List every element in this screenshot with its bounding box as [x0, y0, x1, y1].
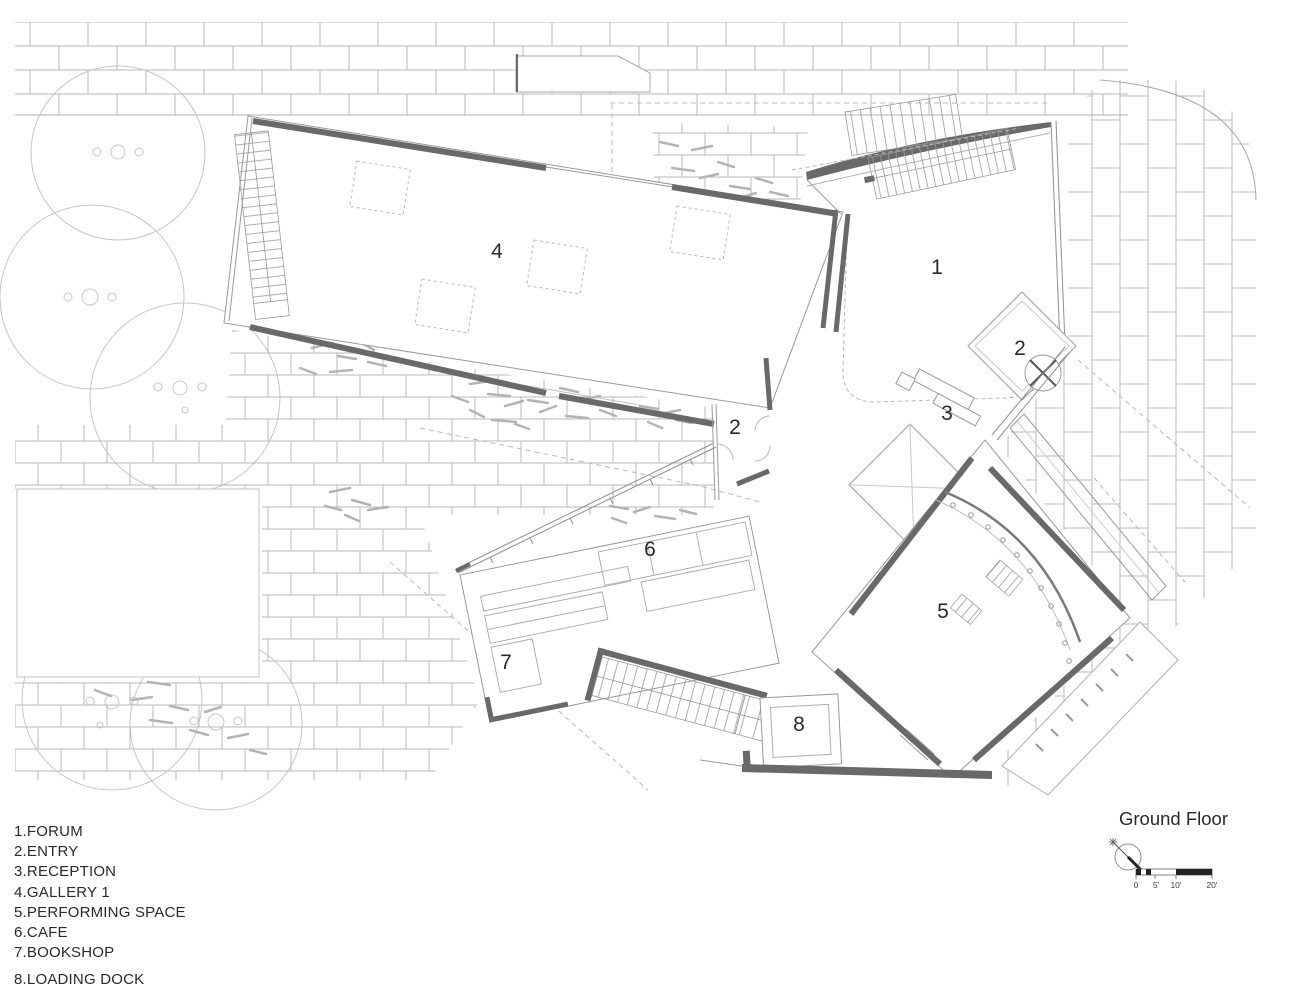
- legend-item: 7.BOOKSHOP: [14, 944, 114, 961]
- room-label-gallery: 4: [491, 240, 503, 263]
- room-label-reception: 3: [941, 402, 953, 425]
- floor-plan-drawing: 4 1 2 3 2 6 5 7 8 1.FORUM 2.ENTRY 3.RECE…: [0, 0, 1304, 1000]
- north-arrow-icon: [1109, 838, 1142, 871]
- legend-item: 4.GALLERY 1: [14, 884, 110, 901]
- drawing-title: Ground Floor: [1119, 808, 1228, 829]
- room-label-entry-east: 2: [1014, 337, 1026, 360]
- scale-tick: 20': [1206, 880, 1217, 890]
- top-brick-paving: [15, 22, 1128, 115]
- room-label-performing: 5: [937, 600, 949, 623]
- scale-tick: 10': [1170, 880, 1181, 890]
- lawn-panel: [17, 489, 259, 677]
- scale-tick: 0: [1134, 880, 1139, 890]
- room-label-entry-mid: 2: [729, 416, 741, 439]
- legend: 1.FORUM 2.ENTRY 3.RECEPTION 4.GALLERY 1 …: [14, 823, 186, 988]
- legend-item: 6.CAFE: [14, 924, 68, 941]
- scale-tick: 5': [1153, 880, 1160, 890]
- legend-item: 1.FORUM: [14, 823, 83, 840]
- legend-item: 8.LOADING DOCK: [14, 971, 144, 988]
- room-label-forum: 1: [931, 256, 943, 279]
- door-swing-arcs: [717, 416, 770, 461]
- legend-item: 3.RECEPTION: [14, 863, 116, 880]
- scale-bar: 0 5' 10' 20': [1134, 869, 1218, 890]
- legend-item: 2.ENTRY: [14, 843, 78, 860]
- legend-item: 5.PERFORMING SPACE: [14, 904, 186, 921]
- room-label-loadingdock: 8: [793, 713, 805, 736]
- floor-plan-page: 4 1 2 3 2 6 5 7 8 1.FORUM 2.ENTRY 3.RECE…: [0, 0, 1304, 1000]
- room-label-cafe: 6: [644, 538, 656, 561]
- room-label-bookshop: 7: [500, 651, 512, 674]
